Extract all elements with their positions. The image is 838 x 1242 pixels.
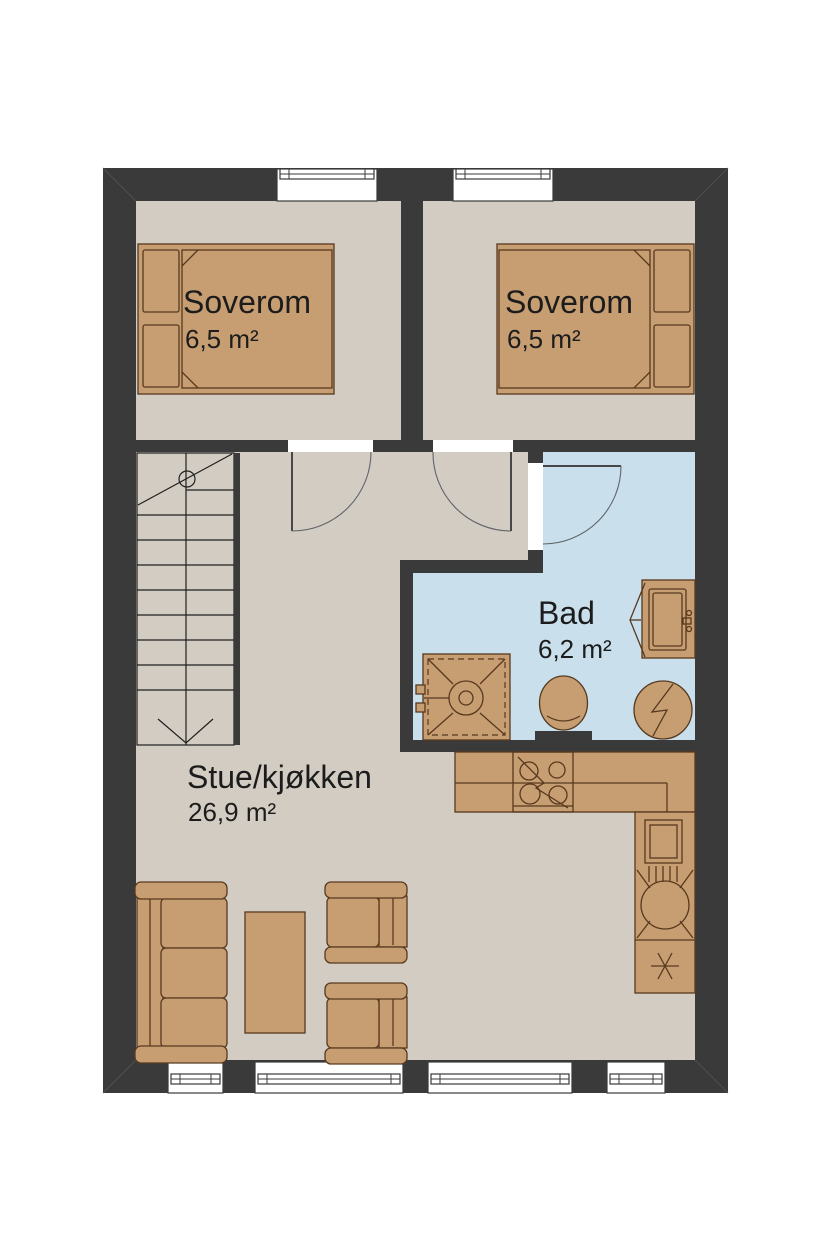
window-bottom-1 bbox=[168, 1062, 223, 1093]
window-bottom-2 bbox=[255, 1062, 403, 1093]
window-bottom-3 bbox=[428, 1062, 572, 1093]
bathroom-name: Bad bbox=[538, 595, 595, 631]
wall-mid-center bbox=[373, 440, 433, 452]
shower-valve-icon bbox=[416, 685, 425, 694]
armchair-1 bbox=[325, 882, 407, 963]
coffee-table bbox=[245, 912, 305, 1033]
bedroom-2-area: 6,5 m² bbox=[507, 324, 581, 354]
wall-bath-step bbox=[400, 560, 543, 573]
floor-plan-page: Soverom 6,5 m² Soverom 6,5 m² Bad 6,2 m²… bbox=[0, 0, 838, 1242]
washing-machine bbox=[634, 681, 692, 739]
wall-mid-right bbox=[513, 440, 695, 452]
bedroom-2-name: Soverom bbox=[505, 284, 633, 320]
window-bottom-4 bbox=[607, 1062, 665, 1093]
armchair-2 bbox=[325, 983, 407, 1064]
bathroom-area: 6,2 m² bbox=[538, 634, 612, 664]
shower bbox=[416, 654, 510, 740]
bedroom-1-name: Soverom bbox=[183, 284, 311, 320]
living-kitchen-name: Stue/kjøkken bbox=[187, 759, 372, 795]
bedroom-1-area: 6,5 m² bbox=[185, 324, 259, 354]
wall-right bbox=[695, 168, 728, 1093]
living-kitchen-area: 26,9 m² bbox=[188, 797, 276, 827]
floor-plan: Soverom 6,5 m² Soverom 6,5 m² Bad 6,2 m²… bbox=[0, 0, 838, 1242]
shower-valve-icon bbox=[416, 703, 425, 712]
wall-mid-left bbox=[136, 440, 288, 452]
wall-bedroom-divider bbox=[401, 201, 423, 452]
sofa bbox=[135, 882, 227, 1063]
wall-bath-left bbox=[400, 560, 413, 752]
window-top-1 bbox=[277, 169, 377, 201]
wall-top bbox=[103, 168, 728, 201]
wall-left bbox=[103, 168, 136, 1093]
window-top-2 bbox=[453, 169, 553, 201]
